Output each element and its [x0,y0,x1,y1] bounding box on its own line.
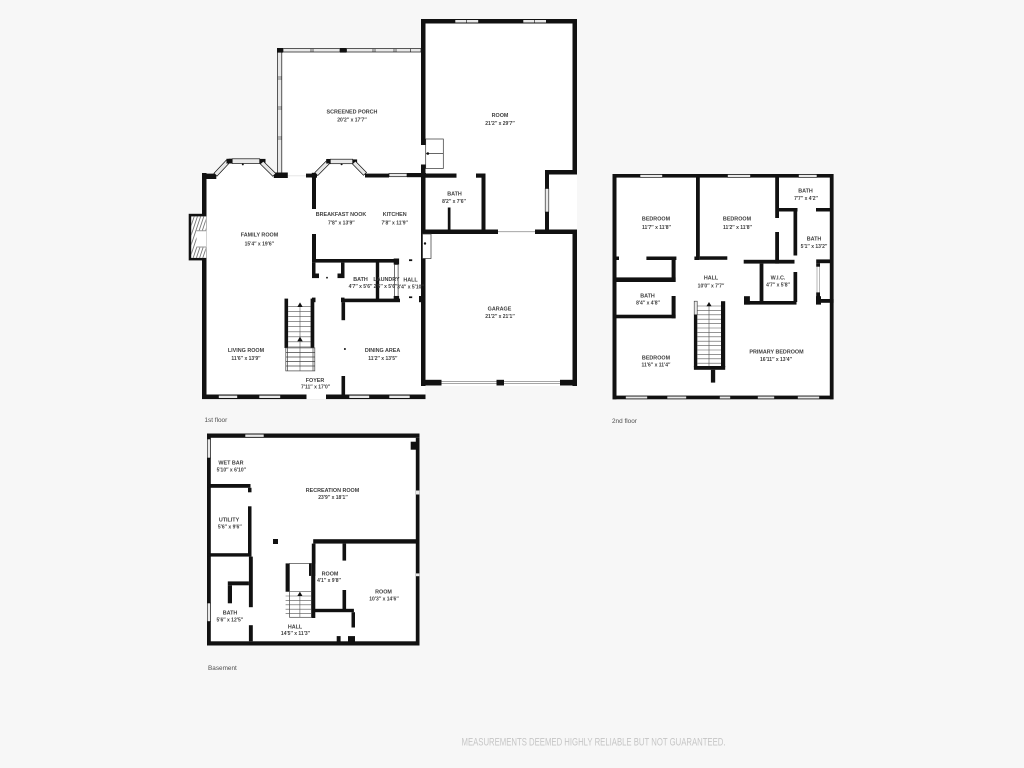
svg-text:11′2″ x 11′8″: 11′2″ x 11′8″ [723,225,752,231]
svg-text:GARAGE: GARAGE [488,307,512,313]
svg-text:LAUNDRY: LAUNDRY [373,277,400,283]
svg-text:7′11″ x 17′0″: 7′11″ x 17′0″ [301,385,331,391]
svg-text:8′4″ x 4′8″: 8′4″ x 4′8″ [636,301,660,307]
svg-text:8′2″ x 7′6″: 8′2″ x 7′6″ [442,199,466,205]
svg-text:5′6″ x 9′6″: 5′6″ x 9′6″ [218,524,242,530]
svg-text:11′6″ x 13′9″: 11′6″ x 13′9″ [231,356,261,362]
svg-text:7′8″ x 11′9″: 7′8″ x 11′9″ [382,221,409,227]
svg-text:4′7″ x 5′8″: 4′7″ x 5′8″ [766,282,790,288]
svg-text:HALL: HALL [288,625,303,631]
svg-text:10′0″ x 7′7″: 10′0″ x 7′7″ [698,283,725,289]
svg-text:20′2″ x 17′7″: 20′2″ x 17′7″ [337,118,367,124]
svg-text:10′3″ x 14′6″: 10′3″ x 14′6″ [369,597,399,603]
svg-text:7′8″ x 13′9″: 7′8″ x 13′9″ [328,221,355,227]
svg-text:RECREATION ROOM: RECREATION ROOM [306,488,360,494]
svg-text:21′2″ x 21′1″: 21′2″ x 21′1″ [485,314,515,320]
svg-text:BATH: BATH [798,189,813,195]
svg-text:1st floor: 1st floor [205,417,229,424]
svg-text:5′6″ x 12′5″: 5′6″ x 12′5″ [216,618,243,624]
svg-text:WET BAR: WET BAR [218,460,243,466]
svg-text:MEASUREMENTS DEEMED HIGHLY REL: MEASUREMENTS DEEMED HIGHLY RELIABLE BUT … [462,737,726,749]
svg-text:ROOM: ROOM [492,113,509,119]
svg-text:4′1″ x 9′8″: 4′1″ x 9′8″ [317,578,341,584]
svg-text:ROOM: ROOM [375,589,392,595]
svg-text:15′4″ x 19′6″: 15′4″ x 19′6″ [245,241,275,247]
svg-text:FAMILY ROOM: FAMILY ROOM [241,233,279,239]
svg-text:21′2″ x 29′7″: 21′2″ x 29′7″ [485,121,515,127]
svg-text:7′7″ x 4′2″: 7′7″ x 4′2″ [794,196,818,202]
svg-text:BATH: BATH [640,294,655,300]
svg-text:16′11″ x 13′4″: 16′11″ x 13′4″ [760,357,793,363]
svg-text:BATH: BATH [807,237,822,243]
svg-text:LIVING ROOM: LIVING ROOM [228,348,265,354]
svg-text:Basement: Basement [208,665,237,672]
svg-text:BATH: BATH [223,611,238,617]
svg-text:SCREENED PORCH: SCREENED PORCH [327,110,378,116]
svg-text:5′10″ x 6′10″: 5′10″ x 6′10″ [217,467,247,473]
svg-text:23′9″ x 18′1″: 23′9″ x 18′1″ [318,495,348,501]
svg-text:11′2″ x 13′5″: 11′2″ x 13′5″ [368,356,398,362]
svg-text:BREAKFAST NOOK: BREAKFAST NOOK [316,212,367,218]
svg-text:BEDROOM: BEDROOM [723,216,752,222]
svg-text:3′4″ x 5′10″: 3′4″ x 5′10″ [397,284,424,290]
svg-text:DINING AREA: DINING AREA [365,348,401,354]
svg-text:BATH: BATH [447,192,462,198]
svg-text:BATH: BATH [353,277,368,283]
svg-text:W.I.C.: W.I.C. [771,276,786,282]
svg-text:5′1″ x 13′2″: 5′1″ x 13′2″ [801,244,828,250]
svg-text:2′6″ x 5′6″: 2′6″ x 5′6″ [374,284,398,290]
svg-text:KITCHEN: KITCHEN [383,212,407,218]
svg-text:PRIMARY BEDROOM: PRIMARY BEDROOM [749,350,804,356]
svg-text:2nd floor: 2nd floor [612,418,638,425]
svg-text:BEDROOM: BEDROOM [642,216,671,222]
svg-text:BEDROOM: BEDROOM [642,356,671,362]
svg-text:11′7″ x 11′8″: 11′7″ x 11′8″ [642,225,671,231]
svg-text:14′5″ x 11′3″: 14′5″ x 11′3″ [281,631,311,637]
svg-text:FOYER: FOYER [306,378,325,384]
svg-text:ROOM: ROOM [322,571,339,577]
svg-text:HALL: HALL [704,276,719,282]
svg-text:UTILITY: UTILITY [219,518,240,524]
svg-text:11′6″ x 11′4″: 11′6″ x 11′4″ [642,363,671,369]
svg-text:4′7″ x 5′6″: 4′7″ x 5′6″ [349,284,373,290]
svg-text:HALL: HALL [403,278,418,284]
